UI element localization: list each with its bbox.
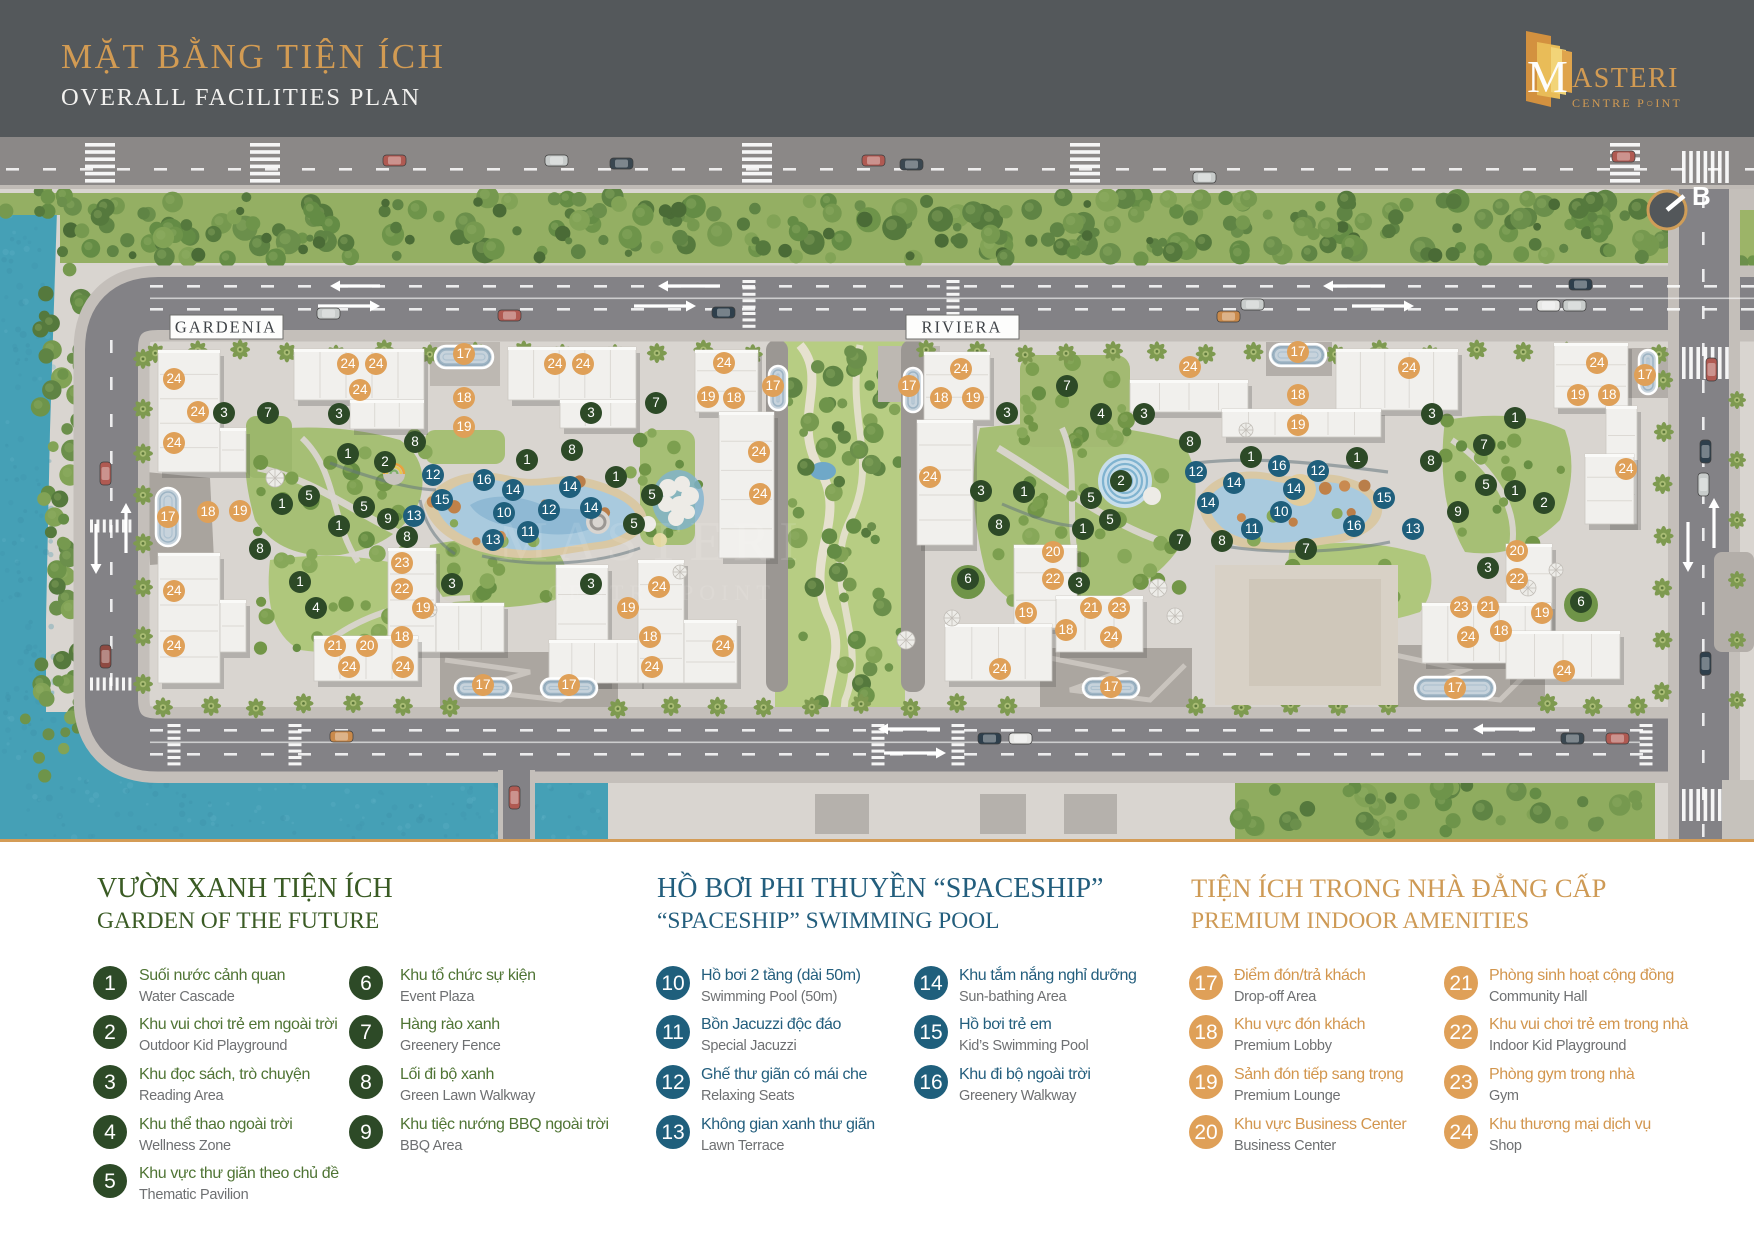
svg-text:Green Lawn Walkway: Green Lawn Walkway	[400, 1088, 536, 1104]
svg-text:19: 19	[1194, 1071, 1217, 1094]
svg-text:17: 17	[1637, 367, 1652, 382]
svg-text:1: 1	[1247, 449, 1255, 464]
svg-text:Thematic Pavilion: Thematic Pavilion	[139, 1187, 249, 1203]
svg-text:Sun-bathing Area: Sun-bathing Area	[959, 989, 1067, 1005]
svg-text:24: 24	[166, 371, 182, 386]
svg-text:18: 18	[1194, 1021, 1217, 1044]
svg-text:1: 1	[1079, 521, 1087, 536]
svg-text:Water Cascade: Water Cascade	[139, 989, 235, 1005]
svg-text:24: 24	[190, 404, 206, 419]
svg-text:13: 13	[1405, 521, 1420, 536]
svg-text:1: 1	[335, 518, 343, 533]
svg-text:14: 14	[1200, 495, 1216, 510]
svg-text:3: 3	[104, 1071, 116, 1094]
svg-text:21: 21	[1449, 972, 1472, 995]
svg-text:Phòng gym trong nhà: Phòng gym trong nhà	[1489, 1066, 1635, 1083]
svg-text:13: 13	[661, 1121, 684, 1144]
svg-text:20: 20	[359, 638, 374, 653]
svg-text:ASTERI: ASTERI	[1572, 63, 1679, 94]
svg-text:20: 20	[1045, 544, 1060, 559]
svg-text:Khu vực đón khách: Khu vực đón khách	[1234, 1016, 1365, 1033]
svg-text:22: 22	[394, 581, 409, 596]
svg-text:Hàng rào xanh: Hàng rào xanh	[400, 1016, 500, 1033]
svg-text:8: 8	[1427, 453, 1435, 468]
svg-text:14: 14	[919, 972, 943, 995]
svg-text:24: 24	[395, 659, 411, 674]
svg-text:13: 13	[485, 532, 500, 547]
svg-text:12: 12	[661, 1071, 684, 1094]
svg-text:GARDENIA: GARDENIA	[175, 318, 277, 337]
svg-text:19: 19	[700, 389, 715, 404]
svg-text:Ghế thư giãn có mái che: Ghế thư giãn có mái che	[701, 1066, 868, 1083]
svg-text:24: 24	[922, 469, 938, 484]
svg-text:10: 10	[496, 505, 511, 520]
svg-text:15: 15	[919, 1021, 942, 1044]
svg-text:18: 18	[1290, 387, 1305, 402]
svg-text:24: 24	[651, 579, 667, 594]
svg-text:15: 15	[1376, 490, 1391, 505]
svg-text:1: 1	[104, 972, 116, 995]
svg-text:7: 7	[1063, 378, 1071, 393]
svg-text:24: 24	[1589, 355, 1605, 370]
svg-text:24: 24	[1182, 359, 1198, 374]
svg-text:24: 24	[166, 583, 182, 598]
svg-text:Sảnh đón tiếp sang trọng: Sảnh đón tiếp sang trọng	[1234, 1066, 1403, 1083]
svg-text:6: 6	[964, 571, 972, 586]
svg-text:22: 22	[1449, 1021, 1472, 1044]
svg-text:Drop-off Area: Drop-off Area	[1234, 989, 1317, 1005]
svg-text:12: 12	[1310, 463, 1325, 478]
svg-text:Khu thương mại dịch vụ: Khu thương mại dịch vụ	[1489, 1116, 1651, 1133]
svg-text:BBQ Area: BBQ Area	[400, 1138, 463, 1154]
svg-text:9: 9	[360, 1121, 372, 1144]
svg-text:11: 11	[1245, 521, 1259, 536]
svg-text:24: 24	[1103, 629, 1119, 644]
svg-text:24: 24	[547, 356, 563, 371]
svg-text:Greenery Walkway: Greenery Walkway	[959, 1088, 1077, 1104]
svg-text:8: 8	[256, 541, 264, 556]
svg-text:1: 1	[523, 452, 531, 467]
svg-text:5: 5	[630, 516, 638, 531]
svg-text:Community Hall: Community Hall	[1489, 989, 1587, 1005]
svg-text:24: 24	[166, 638, 182, 653]
svg-text:8: 8	[1186, 434, 1194, 449]
svg-text:Outdoor Kid Playground: Outdoor Kid Playground	[139, 1038, 287, 1054]
svg-text:2: 2	[1540, 495, 1548, 510]
svg-text:16: 16	[1346, 518, 1361, 533]
svg-text:M: M	[1527, 51, 1568, 102]
svg-text:Business Center: Business Center	[1234, 1138, 1336, 1154]
svg-text:2: 2	[381, 454, 389, 469]
svg-text:23: 23	[394, 555, 409, 570]
svg-text:5: 5	[1106, 512, 1114, 527]
svg-text:17: 17	[160, 509, 175, 524]
svg-text:8: 8	[1218, 533, 1226, 548]
svg-text:9: 9	[1454, 504, 1462, 519]
svg-text:24: 24	[1556, 663, 1572, 678]
svg-text:1: 1	[278, 496, 286, 511]
svg-text:21: 21	[1083, 600, 1098, 615]
svg-text:Điểm đón/trả khách: Điểm đón/trả khách	[1234, 966, 1366, 984]
svg-text:19: 19	[232, 503, 247, 518]
svg-text:RIVIERA: RIVIERA	[922, 318, 1003, 337]
svg-text:5: 5	[360, 499, 368, 514]
svg-text:24: 24	[1618, 461, 1634, 476]
svg-text:14: 14	[1286, 481, 1302, 496]
svg-text:5: 5	[648, 487, 656, 502]
svg-text:VƯỜN XANH TIỆN ÍCH: VƯỜN XANH TIỆN ÍCH	[97, 873, 393, 904]
svg-text:Bồn Jacuzzi độc đáo: Bồn Jacuzzi độc đáo	[701, 1016, 842, 1033]
svg-text:19: 19	[415, 600, 430, 615]
svg-text:17: 17	[561, 677, 576, 692]
svg-text:3: 3	[1140, 406, 1148, 421]
svg-text:4: 4	[312, 600, 320, 615]
svg-text:8: 8	[360, 1071, 372, 1094]
svg-text:3: 3	[1075, 575, 1083, 590]
svg-text:14: 14	[1226, 475, 1242, 490]
svg-text:18: 18	[642, 629, 657, 644]
svg-text:17: 17	[1447, 680, 1462, 695]
svg-text:19: 19	[620, 600, 635, 615]
svg-text:Phòng sinh hoạt cộng đồng: Phòng sinh hoạt cộng đồng	[1489, 967, 1674, 984]
svg-text:Premium Lounge: Premium Lounge	[1234, 1088, 1340, 1104]
svg-text:24: 24	[1449, 1121, 1473, 1144]
svg-text:17: 17	[901, 378, 916, 393]
svg-text:3: 3	[448, 576, 456, 591]
svg-text:5: 5	[1087, 490, 1095, 505]
svg-text:1: 1	[1511, 410, 1519, 425]
svg-text:3: 3	[1484, 560, 1492, 575]
svg-text:TIỆN ÍCH TRONG NHÀ ĐẲNG CẤP: TIỆN ÍCH TRONG NHÀ ĐẲNG CẤP	[1191, 872, 1606, 903]
svg-text:4: 4	[1097, 406, 1105, 421]
svg-text:17: 17	[765, 378, 780, 393]
svg-text:14: 14	[562, 479, 578, 494]
svg-text:3: 3	[1003, 405, 1011, 420]
svg-text:3: 3	[220, 405, 228, 420]
svg-text:6: 6	[360, 972, 372, 995]
svg-text:19: 19	[1534, 605, 1549, 620]
svg-text:24: 24	[368, 356, 384, 371]
svg-text:15: 15	[434, 492, 449, 507]
svg-text:3: 3	[587, 405, 595, 420]
svg-text:24: 24	[352, 382, 368, 397]
svg-text:2: 2	[104, 1021, 116, 1044]
svg-text:Khu vui chơi trẻ em trong nhà: Khu vui chơi trẻ em trong nhà	[1489, 1016, 1689, 1033]
svg-text:11: 11	[662, 1021, 684, 1044]
svg-text:7: 7	[264, 405, 272, 420]
svg-text:22: 22	[1509, 571, 1524, 586]
svg-text:Kid’s Swimming Pool: Kid’s Swimming Pool	[959, 1038, 1088, 1054]
svg-text:18: 18	[394, 629, 409, 644]
svg-text:22: 22	[1045, 571, 1060, 586]
svg-text:24: 24	[715, 638, 731, 653]
svg-text:CENTRE P○INT: CENTRE P○INT	[1572, 96, 1682, 110]
svg-text:11: 11	[521, 524, 535, 539]
svg-text:Greenery Fence: Greenery Fence	[400, 1038, 501, 1054]
svg-text:4: 4	[104, 1121, 116, 1144]
svg-text:18: 18	[456, 390, 471, 405]
svg-text:3: 3	[1428, 406, 1436, 421]
svg-text:OVERALL FACILITIES PLAN: OVERALL FACILITIES PLAN	[61, 84, 421, 111]
svg-text:Khu thể thao ngoài trời: Khu thể thao ngoài trời	[139, 1115, 292, 1133]
svg-text:16: 16	[919, 1071, 942, 1094]
svg-text:Khu tiệc nướng BBQ ngoài trời: Khu tiệc nướng BBQ ngoài trời	[400, 1116, 609, 1133]
svg-text:Khu tắm nắng nghỉ dưỡng: Khu tắm nắng nghỉ dưỡng	[959, 965, 1136, 984]
svg-text:18: 18	[726, 390, 741, 405]
svg-text:Không gian xanh thư giãn: Không gian xanh thư giãn	[701, 1116, 875, 1133]
svg-text:Swimming Pool (50m): Swimming Pool (50m)	[701, 989, 837, 1005]
svg-text:3: 3	[335, 406, 343, 421]
svg-text:PREMIUM INDOOR AMENITIES: PREMIUM INDOOR AMENITIES	[1191, 908, 1529, 934]
svg-text:14: 14	[583, 500, 599, 515]
svg-text:7: 7	[1176, 532, 1184, 547]
svg-text:18: 18	[1601, 387, 1616, 402]
svg-text:Hồ bơi trẻ em: Hồ bơi trẻ em	[959, 1016, 1052, 1033]
svg-text:23: 23	[1111, 600, 1126, 615]
svg-text:18: 18	[200, 504, 215, 519]
svg-text:Khu vui chơi trẻ em ngoài trời: Khu vui chơi trẻ em ngoài trời	[139, 1016, 337, 1033]
svg-text:10: 10	[1273, 504, 1288, 519]
svg-text:HỒ BƠI PHI THUYỀN “SPACESHIP”: HỒ BƠI PHI THUYỀN “SPACESHIP”	[657, 872, 1103, 904]
svg-text:17: 17	[1290, 344, 1305, 359]
svg-text:23: 23	[1453, 599, 1468, 614]
svg-text:Lối đi bộ xanh: Lối đi bộ xanh	[400, 1066, 494, 1083]
svg-text:Suối nước cảnh quan: Suối nước cảnh quan	[139, 967, 285, 984]
svg-text:21: 21	[1480, 599, 1495, 614]
svg-text:7: 7	[1302, 541, 1310, 556]
svg-text:Wellness Zone: Wellness Zone	[139, 1138, 231, 1154]
svg-text:Khu vực Business Center: Khu vực Business Center	[1234, 1116, 1407, 1133]
svg-text:2: 2	[1117, 473, 1125, 488]
svg-text:Event Plaza: Event Plaza	[400, 989, 475, 1005]
svg-text:23: 23	[1449, 1071, 1472, 1094]
svg-text:16: 16	[476, 472, 491, 487]
svg-text:MẶT BẰNG TIỆN ÍCH: MẶT BẰNG TIỆN ÍCH	[61, 36, 445, 76]
svg-text:16: 16	[1271, 458, 1286, 473]
svg-text:17: 17	[1103, 679, 1118, 694]
svg-text:Khu đọc sách, trò chuyện: Khu đọc sách, trò chuyện	[139, 1066, 310, 1083]
svg-text:7: 7	[652, 395, 660, 410]
svg-text:6: 6	[1577, 594, 1585, 609]
svg-text:1: 1	[1020, 484, 1028, 499]
svg-text:17: 17	[475, 677, 490, 692]
svg-text:13: 13	[406, 508, 421, 523]
svg-text:9: 9	[384, 511, 392, 526]
svg-text:7: 7	[1480, 437, 1488, 452]
svg-text:24: 24	[1401, 360, 1417, 375]
svg-text:5: 5	[1482, 477, 1490, 492]
svg-text:8: 8	[411, 434, 419, 449]
svg-text:18: 18	[933, 390, 948, 405]
svg-text:8: 8	[568, 442, 576, 457]
svg-text:Special Jacuzzi: Special Jacuzzi	[701, 1038, 797, 1054]
svg-text:20: 20	[1194, 1121, 1217, 1144]
svg-text:12: 12	[541, 502, 556, 517]
svg-text:24: 24	[575, 356, 591, 371]
svg-text:12: 12	[425, 467, 440, 482]
svg-text:1: 1	[344, 446, 352, 461]
svg-text:24: 24	[340, 356, 356, 371]
svg-text:19: 19	[965, 390, 980, 405]
svg-text:Khu đi bộ ngoài trời: Khu đi bộ ngoài trời	[959, 1066, 1090, 1083]
svg-text:Hồ bơi 2 tầng (dài 50m): Hồ bơi 2 tầng (dài 50m)	[701, 967, 861, 984]
svg-text:19: 19	[456, 419, 471, 434]
svg-text:24: 24	[166, 435, 182, 450]
svg-text:Khu vực thư giãn theo chủ đề: Khu vực thư giãn theo chủ đề	[139, 1165, 339, 1182]
svg-text:Relaxing Seats: Relaxing Seats	[701, 1088, 794, 1104]
svg-text:Lawn Terrace: Lawn Terrace	[701, 1138, 784, 1154]
svg-text:8: 8	[995, 517, 1003, 532]
svg-text:17: 17	[1194, 972, 1217, 995]
svg-text:1: 1	[612, 469, 620, 484]
svg-text:10: 10	[661, 972, 684, 995]
svg-text:5: 5	[104, 1170, 116, 1193]
svg-text:24: 24	[716, 355, 732, 370]
svg-text:7: 7	[360, 1021, 372, 1044]
svg-text:19: 19	[1290, 417, 1305, 432]
svg-text:1: 1	[296, 574, 304, 589]
svg-text:20: 20	[1509, 543, 1524, 558]
svg-text:24: 24	[1460, 629, 1476, 644]
svg-text:24: 24	[752, 486, 768, 501]
svg-text:3: 3	[587, 576, 595, 591]
svg-text:21: 21	[327, 638, 342, 653]
svg-text:12: 12	[1188, 464, 1203, 479]
svg-text:GARDEN OF THE FUTURE: GARDEN OF THE FUTURE	[97, 908, 379, 934]
svg-text:3: 3	[977, 483, 985, 498]
svg-text:24: 24	[751, 444, 767, 459]
svg-text:B: B	[1692, 181, 1711, 211]
svg-text:24: 24	[953, 361, 969, 376]
svg-text:1: 1	[1353, 450, 1361, 465]
svg-text:24: 24	[341, 659, 357, 674]
svg-text:17: 17	[456, 346, 471, 361]
svg-text:18: 18	[1058, 622, 1073, 637]
svg-text:Indoor Kid Playground: Indoor Kid Playground	[1489, 1038, 1626, 1054]
svg-text:Khu tổ chức sự kiện: Khu tổ chức sự kiện	[400, 966, 536, 984]
svg-text:Gym: Gym	[1489, 1088, 1519, 1104]
svg-text:8: 8	[403, 529, 411, 544]
svg-text:1: 1	[1511, 483, 1519, 498]
svg-text:5: 5	[305, 488, 313, 503]
svg-text:Reading Area: Reading Area	[139, 1088, 225, 1104]
svg-text:24: 24	[992, 661, 1008, 676]
svg-text:19: 19	[1570, 387, 1585, 402]
svg-text:18: 18	[1493, 623, 1508, 638]
svg-text:MASTERI: MASTERI	[498, 511, 807, 573]
svg-text:Premium Lobby: Premium Lobby	[1234, 1038, 1333, 1054]
svg-text:19: 19	[1018, 605, 1033, 620]
svg-text:Shop: Shop	[1489, 1138, 1522, 1154]
svg-text:24: 24	[644, 659, 660, 674]
svg-text:“SPACESHIP” SWIMMING POOL: “SPACESHIP” SWIMMING POOL	[657, 908, 1000, 934]
svg-text:14: 14	[505, 482, 521, 497]
